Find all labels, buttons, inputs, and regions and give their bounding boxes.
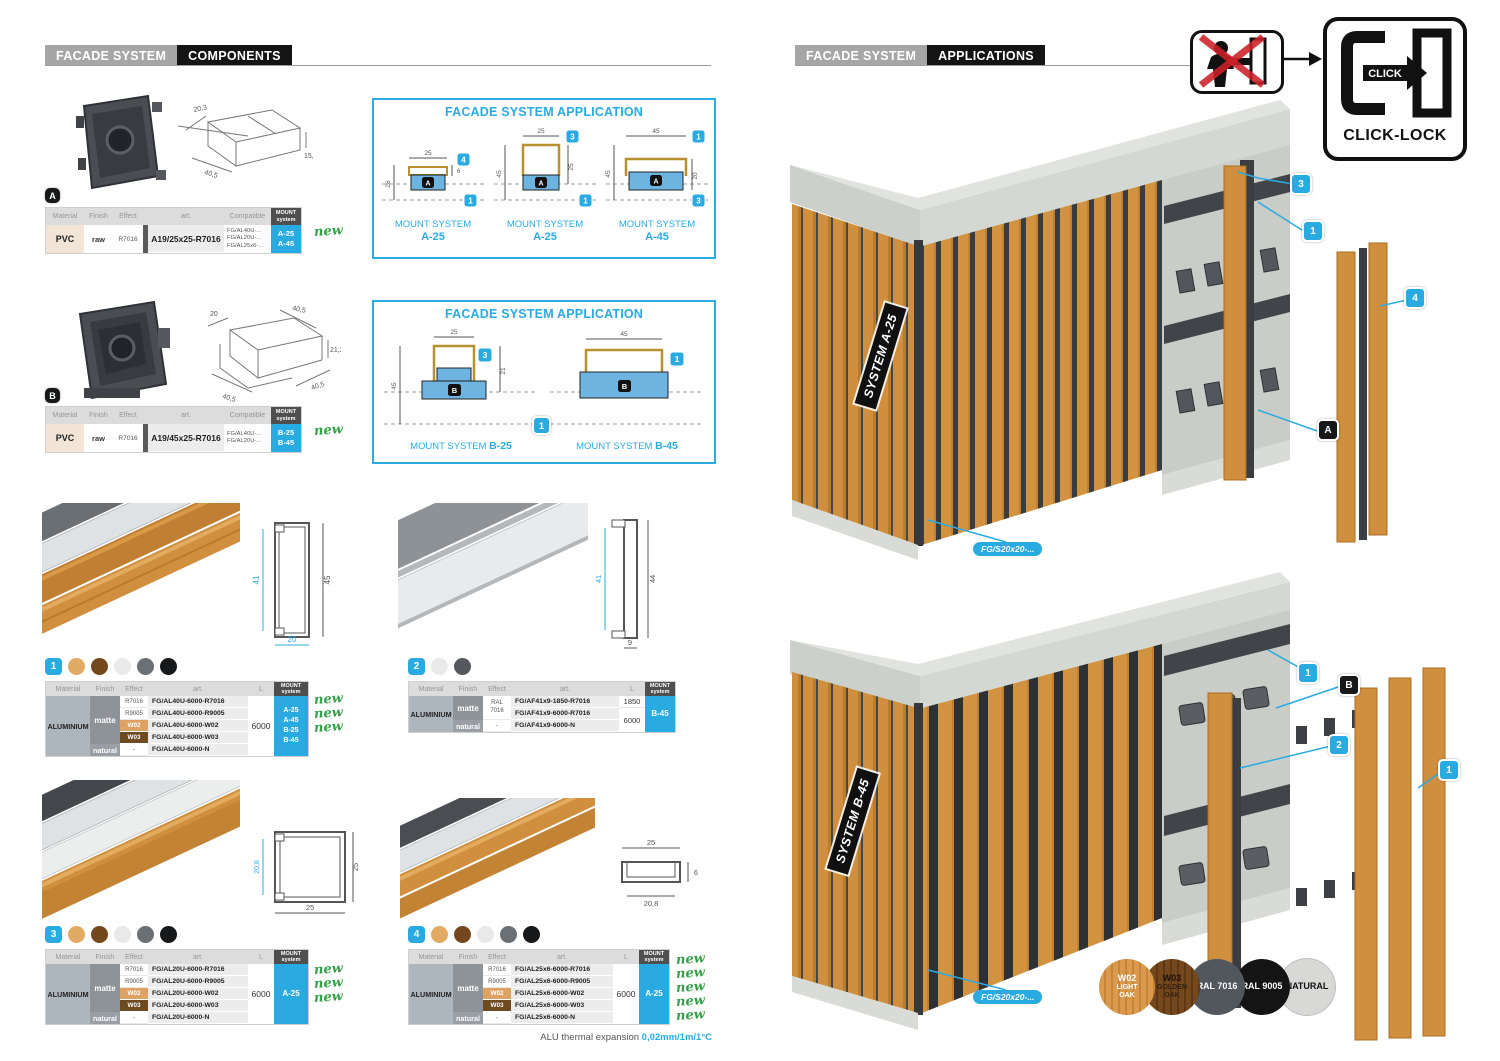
col-material: Material <box>46 208 84 225</box>
callout-3: 3 <box>1290 173 1312 195</box>
profile-1-cross-section: 41 45 20 <box>245 513 345 653</box>
effect-value: R7016 <box>113 225 143 253</box>
svg-text:21,2: 21,2 <box>330 347 341 354</box>
swatch-ral9005 <box>160 658 177 675</box>
profile-2-finish-row: 2 <box>408 658 471 675</box>
svg-text:B: B <box>622 382 628 391</box>
svg-text:20,3: 20,3 <box>193 104 208 114</box>
callout-1: 1 <box>1302 220 1324 242</box>
part-label: FG/S20x20-... <box>973 990 1042 1004</box>
swatch-natural <box>431 658 448 675</box>
profile-4-cross-section: 25 20,8 6 <box>608 832 698 912</box>
svg-text:9: 9 <box>628 638 632 647</box>
profile-2-number: 2 <box>408 658 425 675</box>
app-a-diagram-1: A 26 25 6 4 1 <box>380 124 486 218</box>
compatible-list: FG/AL40U-...FG/AL20U-...FG/AL25x6-... <box>224 225 271 253</box>
component-b-photo <box>58 288 193 413</box>
svg-text:1: 1 <box>675 354 680 364</box>
svg-text:25: 25 <box>537 128 545 135</box>
profile-4-finish-row: 4 <box>408 926 540 943</box>
col-compatible: Compatible <box>224 208 271 225</box>
application-box-b: FACADE SYSTEM APPLICATION B 25 3 45 21 M… <box>372 300 716 464</box>
section-tab-components: COMPONENTS <box>177 45 292 66</box>
profile-1-finish-row: 1 <box>45 658 177 675</box>
app-b-diagram-1: B 25 3 45 21 <box>382 326 540 438</box>
component-b-drawing: 20 40,5 21,2 40,5 40,5 <box>196 300 341 405</box>
callout-4: 4 <box>1404 287 1426 309</box>
svg-text:15,1: 15,1 <box>304 153 314 160</box>
swatch-ral7016 <box>137 658 154 675</box>
right-header-rule <box>795 65 1238 66</box>
art-number: A19/45x25-R7016 <box>148 424 224 452</box>
svg-text:26: 26 <box>385 180 392 188</box>
callout-1: 1 <box>532 416 551 435</box>
svg-text:A: A <box>425 181 430 188</box>
new-flag: new <box>314 989 344 1006</box>
svg-text:B: B <box>452 386 458 395</box>
svg-text:40,5: 40,5 <box>203 169 218 180</box>
app-b-diagram-2: B 45 1 <box>548 326 706 438</box>
material-value: PVC <box>46 225 84 253</box>
component-b-table: Material Finish Effect art. Compatible M… <box>45 406 302 453</box>
profile-1-table: Material Finish Effect art. L MOUNTsyste… <box>45 681 309 757</box>
svg-text:20: 20 <box>692 172 699 180</box>
col-art: art. <box>148 208 224 225</box>
svg-text:20,8: 20,8 <box>254 860 261 874</box>
left-header-rule <box>45 65 711 66</box>
part-label: FG/S20x20-... <box>973 542 1042 556</box>
profile-3-render <box>42 780 240 922</box>
profile-3-table: Material Finish Effect art. L MOUNTsyste… <box>45 949 309 1025</box>
swatch-w02-light-oak: W02LIGHTOAK <box>1099 959 1155 1015</box>
profile-3-number: 3 <box>45 926 62 943</box>
svg-text:A: A <box>538 181 543 188</box>
callout-2: 2 <box>1328 734 1350 756</box>
svg-text:45: 45 <box>605 170 612 178</box>
component-a-marker: A <box>45 188 60 203</box>
catalog-page: FACADE SYSTEM COMPONENTS 20,3 40,5 15,1 … <box>0 0 1500 1061</box>
finish-value: raw <box>84 225 113 253</box>
brand-tab: FACADE SYSTEM <box>45 45 177 66</box>
svg-text:41: 41 <box>596 575 603 583</box>
new-flag: new <box>676 1007 706 1024</box>
component-a-drawing: 20,3 40,5 15,1 <box>178 96 314 192</box>
new-flag: new <box>314 719 344 736</box>
svg-text:25: 25 <box>424 150 432 157</box>
svg-text:A: A <box>653 179 658 186</box>
profile-4-number: 4 <box>408 926 425 943</box>
profile-2-render <box>398 503 588 651</box>
profile-1-render <box>42 503 240 655</box>
svg-text:6: 6 <box>457 169 461 175</box>
svg-text:40,5: 40,5 <box>221 393 236 404</box>
application-box-a: FACADE SYSTEM APPLICATION A 26 25 6 4 1 … <box>372 98 716 259</box>
component-b-marker: B <box>45 388 60 403</box>
profile-3-finish-row: 3 <box>45 926 177 943</box>
section-tab-applications: APPLICATIONS <box>927 45 1045 66</box>
component-a-table: Material Finish Effect art. Compatible M… <box>45 207 302 254</box>
swatch-w03 <box>91 658 108 675</box>
new-flag: new <box>314 223 344 240</box>
thermal-expansion-note: ALU thermal expansion 0,02mm/1m/1°C <box>490 1032 712 1043</box>
svg-text:CLICK: CLICK <box>1368 68 1402 80</box>
svg-text:45: 45 <box>391 382 398 390</box>
svg-text:41: 41 <box>252 575 261 584</box>
profile-2-table: Material Finish Effect art. L MOUNTsyste… <box>408 681 676 733</box>
component-a-photo <box>58 86 186 204</box>
svg-text:20: 20 <box>288 635 297 644</box>
profile-2-cross-section: 41 44 9 <box>596 510 664 656</box>
svg-text:1: 1 <box>696 133 701 142</box>
svg-text:45: 45 <box>496 170 503 178</box>
application-title: FACADE SYSTEM APPLICATION <box>374 307 714 321</box>
svg-text:3: 3 <box>483 350 488 360</box>
svg-text:3: 3 <box>696 197 701 206</box>
svg-text:21: 21 <box>500 367 507 375</box>
application-title: FACADE SYSTEM APPLICATION <box>374 105 714 119</box>
svg-text:40,5: 40,5 <box>292 305 307 315</box>
svg-text:20: 20 <box>210 311 218 318</box>
callout-b: B <box>1338 674 1360 696</box>
right-header: FACADE SYSTEM APPLICATIONS <box>795 45 1045 66</box>
svg-text:40,5: 40,5 <box>310 381 325 392</box>
svg-text:25: 25 <box>351 863 360 871</box>
swatch-natural <box>114 658 131 675</box>
svg-text:25: 25 <box>647 838 655 847</box>
art-number: A19/25x25-R7016 <box>148 225 224 253</box>
profile-1-number: 1 <box>45 658 62 675</box>
left-header: FACADE SYSTEM COMPONENTS <box>45 45 292 66</box>
svg-text:6: 6 <box>694 870 698 877</box>
app-a-diagram-2: A 25 3 45 25 1 <box>492 124 598 218</box>
svg-text:25: 25 <box>306 903 314 912</box>
svg-text:45: 45 <box>652 128 660 135</box>
profile-3-cross-section: 20,8 25 25 <box>243 818 361 922</box>
svg-text:25: 25 <box>568 163 575 171</box>
svg-text:20,8: 20,8 <box>644 899 659 908</box>
new-flag: new <box>314 422 344 439</box>
mount-system-value: A-25A-45 <box>271 225 301 253</box>
callout-a: A <box>1317 419 1339 441</box>
callout-1b: 1 <box>1438 759 1460 781</box>
swatch-w02 <box>68 658 85 675</box>
col-mount-system: MOUNTsystem <box>271 208 301 225</box>
profile-4-table: Material Finish Effect art. L MOUNTsyste… <box>408 949 670 1025</box>
profile-4-render <box>400 798 595 926</box>
app-a-diagram-3: A 45 1 45 20 3 <box>604 124 710 218</box>
svg-text:45: 45 <box>323 575 332 584</box>
svg-text:1: 1 <box>468 197 473 206</box>
swatch-ral7016 <box>454 658 471 675</box>
svg-text:4: 4 <box>461 156 466 165</box>
brand-tab: FACADE SYSTEM <box>795 45 927 66</box>
col-finish: Finish <box>84 208 113 225</box>
svg-text:44: 44 <box>648 575 657 583</box>
col-effect: Effect <box>113 208 143 225</box>
svg-text:45: 45 <box>620 331 628 338</box>
svg-text:3: 3 <box>570 133 575 142</box>
arrow-icon <box>1282 50 1322 68</box>
callout-1: 1 <box>1297 662 1319 684</box>
svg-text:1: 1 <box>583 197 588 206</box>
svg-text:25: 25 <box>450 329 458 336</box>
